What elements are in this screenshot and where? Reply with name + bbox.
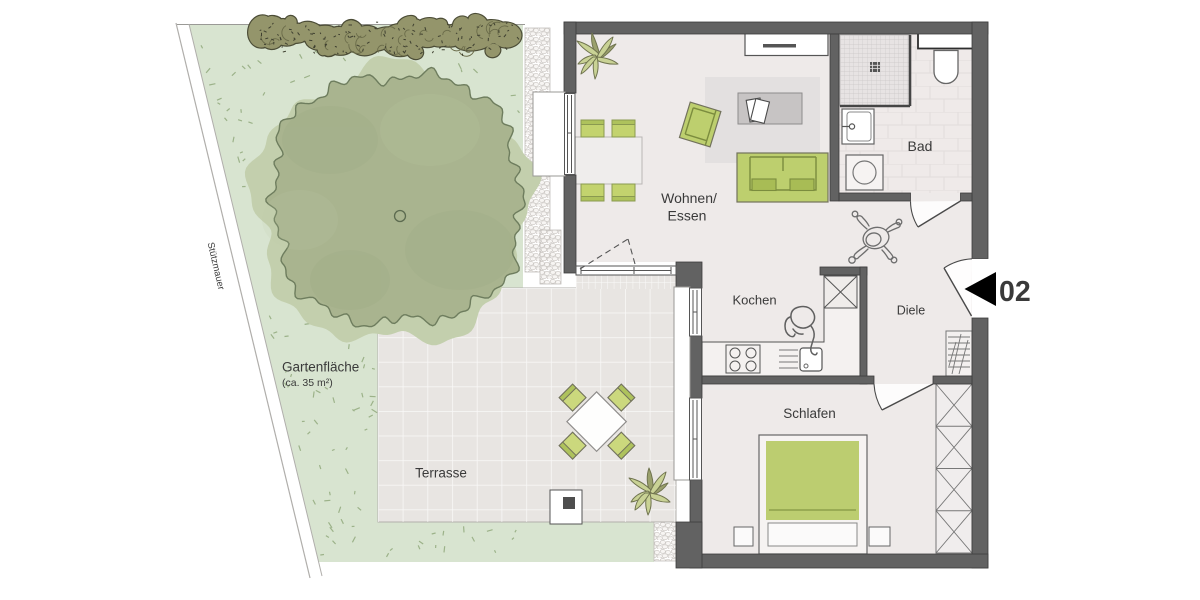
svg-text:02: 02 [999,276,1031,308]
svg-text:Bad: Bad [908,138,933,154]
svg-text:Schlafen: Schlafen [783,406,836,421]
svg-text:Diele: Diele [897,304,926,318]
svg-text:Gartenfläche: Gartenfläche [282,360,359,375]
svg-text:Terrasse: Terrasse [415,466,467,481]
svg-text:Essen: Essen [668,207,707,223]
svg-text:Wohnen/: Wohnen/ [661,190,717,206]
svg-text:(ca. 35 m²): (ca. 35 m²) [282,377,333,389]
svg-text:Kochen: Kochen [732,293,776,308]
svg-text:Stützmauer: Stützmauer [205,241,227,291]
